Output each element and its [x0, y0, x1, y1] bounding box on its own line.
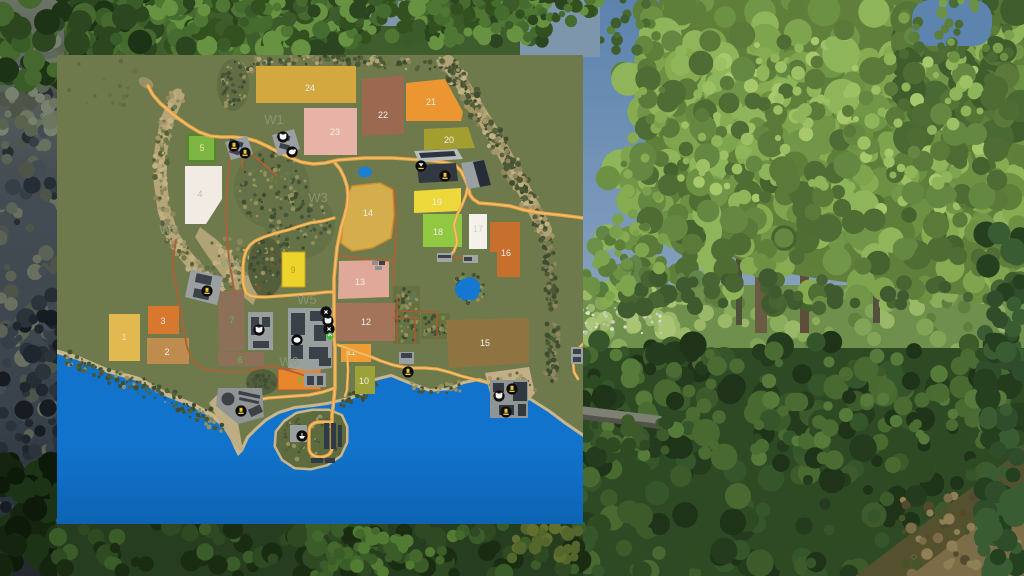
svg-text:7: 7: [229, 315, 234, 325]
svg-text:W2: W2: [159, 222, 179, 237]
svg-text:9: 9: [290, 265, 295, 275]
svg-text:W3: W3: [308, 190, 328, 205]
svg-text:13: 13: [355, 277, 365, 287]
svg-text:20: 20: [444, 135, 454, 145]
svg-text:16: 16: [501, 248, 511, 258]
svg-text:8: 8: [297, 375, 302, 385]
svg-text:21: 21: [426, 97, 436, 107]
svg-text:22: 22: [378, 110, 388, 120]
svg-text:18: 18: [433, 227, 443, 237]
svg-text:W1: W1: [264, 112, 284, 127]
svg-text:23: 23: [330, 127, 340, 137]
svg-text:W4: W4: [220, 255, 240, 270]
svg-text:1: 1: [121, 332, 126, 342]
svg-text:W6: W6: [279, 354, 299, 369]
svg-text:24: 24: [305, 83, 315, 93]
svg-text:4: 4: [197, 189, 202, 199]
svg-text:19: 19: [432, 197, 442, 207]
svg-text:14: 14: [363, 208, 373, 218]
svg-text:17: 17: [473, 224, 483, 234]
svg-text:6: 6: [237, 355, 242, 365]
svg-text:3: 3: [160, 316, 165, 326]
svg-text:5: 5: [199, 143, 204, 153]
svg-text:15: 15: [480, 338, 490, 348]
svg-text:12: 12: [361, 317, 371, 327]
svg-text:10: 10: [359, 376, 369, 386]
svg-text:W5: W5: [297, 292, 317, 307]
svg-text:2: 2: [164, 347, 169, 357]
